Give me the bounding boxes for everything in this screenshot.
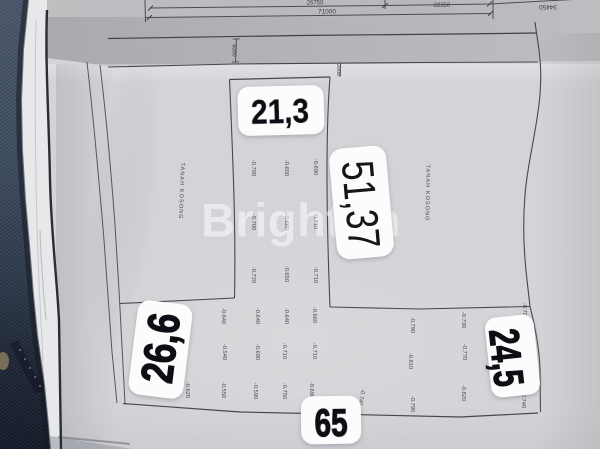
svg-text:-0.620: -0.620: [184, 382, 190, 398]
svg-text:-0.750: -0.750: [281, 383, 287, 399]
svg-text:-0.700: -0.700: [250, 160, 256, 176]
svg-text:-0.720: -0.720: [250, 267, 256, 283]
svg-text:2000: 2000: [335, 64, 341, 76]
svg-text:26750: 26750: [307, 1, 324, 7]
svg-text:-0.690: -0.690: [254, 344, 260, 360]
svg-text:-0.820: -0.820: [460, 385, 466, 401]
svg-text:-0.660: -0.660: [311, 307, 317, 323]
svg-text:24,5: 24,5: [480, 326, 533, 389]
svg-text:-0.710: -0.710: [312, 267, 318, 283]
svg-text:65: 65: [314, 402, 348, 446]
svg-text:-0.710: -0.710: [311, 343, 317, 359]
svg-text:-0.550: -0.550: [220, 382, 226, 398]
svg-text:21,3: 21,3: [251, 92, 310, 132]
svg-text:26,6: 26,6: [131, 310, 190, 386]
svg-text:TANAH KOSONG: TANAH KOSONG: [424, 164, 431, 221]
svg-text:51,37: 51,37: [332, 158, 390, 250]
svg-text:-0.650: -0.650: [283, 266, 289, 282]
svg-text:22350: 22350: [434, 3, 451, 9]
svg-text:-0.790: -0.790: [409, 317, 415, 333]
svg-text:-0.640: -0.640: [254, 308, 260, 324]
svg-text:-0.790: -0.790: [409, 396, 415, 412]
svg-text:34450: 34450: [539, 3, 557, 10]
svg-text:-0.770: -0.770: [461, 344, 467, 360]
svg-text:-0.710: -0.710: [281, 343, 287, 359]
svg-text:-0.690: -0.690: [312, 159, 318, 175]
svg-text:-0.810: -0.810: [407, 353, 413, 369]
svg-text:-0.640: -0.640: [283, 308, 289, 324]
svg-text:-0.590: -0.590: [252, 383, 258, 399]
svg-text:-0.640: -0.640: [220, 308, 226, 324]
svg-text:-0.690: -0.690: [308, 382, 314, 398]
svg-text:-0.540: -0.540: [221, 344, 227, 360]
svg-text:-0.650: -0.650: [283, 160, 289, 176]
svg-text:-0.730: -0.730: [460, 312, 466, 328]
svg-text:6000: 6000: [231, 44, 237, 56]
svg-text:71000: 71000: [318, 9, 336, 16]
